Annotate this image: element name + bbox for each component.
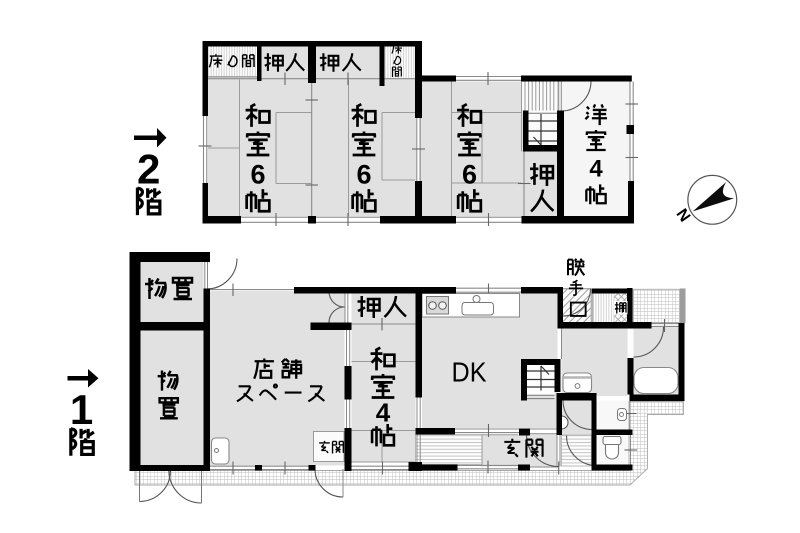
svg-text:6: 6 bbox=[250, 160, 265, 190]
svg-text:4: 4 bbox=[589, 156, 603, 183]
svg-text:4: 4 bbox=[376, 398, 391, 428]
svg-text:6: 6 bbox=[356, 160, 371, 190]
svg-text:2: 2 bbox=[137, 146, 160, 193]
svg-text:6: 6 bbox=[462, 160, 477, 190]
svg-text:DK: DK bbox=[452, 357, 487, 388]
svg-text:1: 1 bbox=[70, 386, 93, 433]
